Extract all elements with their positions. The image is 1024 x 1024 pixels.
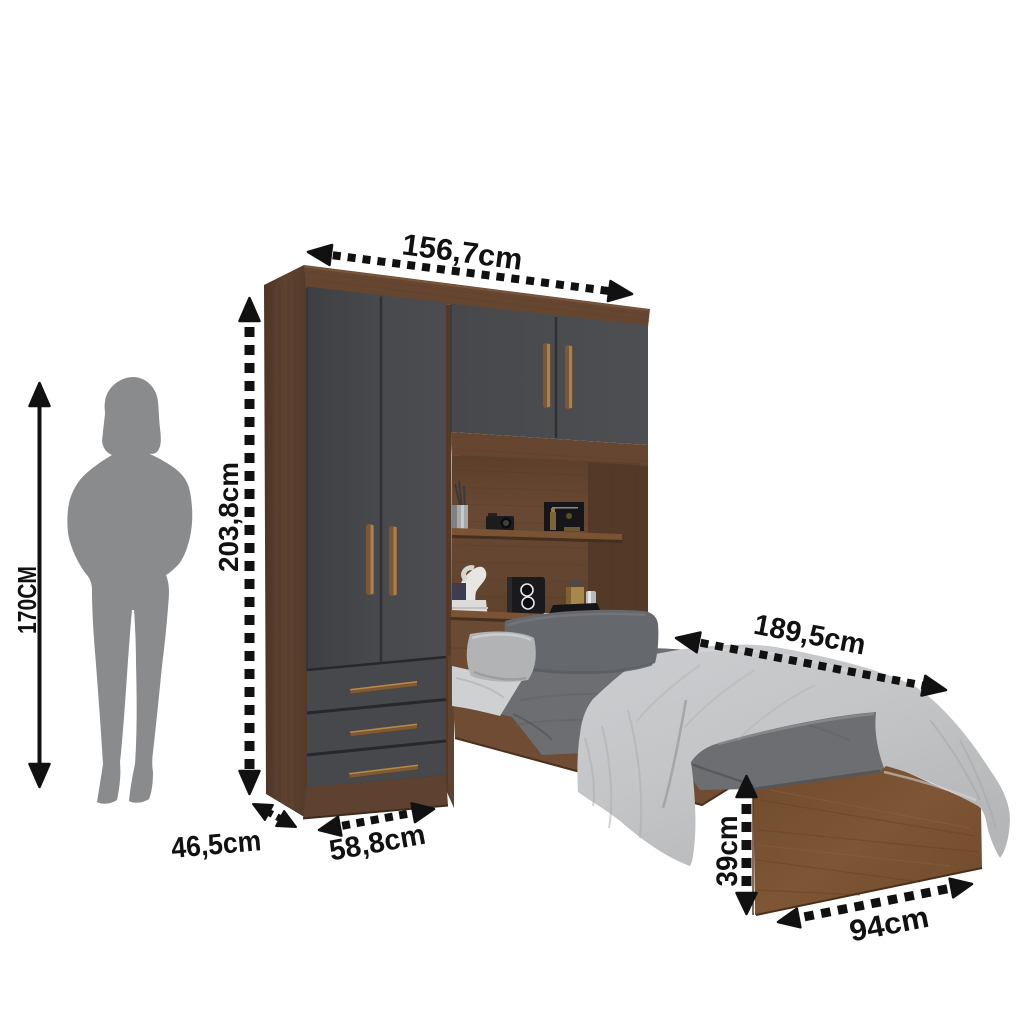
svg-text:39cm: 39cm (711, 816, 744, 887)
svg-text:170CM: 170CM (12, 566, 42, 634)
svg-text:203,8cm: 203,8cm (213, 462, 244, 572)
